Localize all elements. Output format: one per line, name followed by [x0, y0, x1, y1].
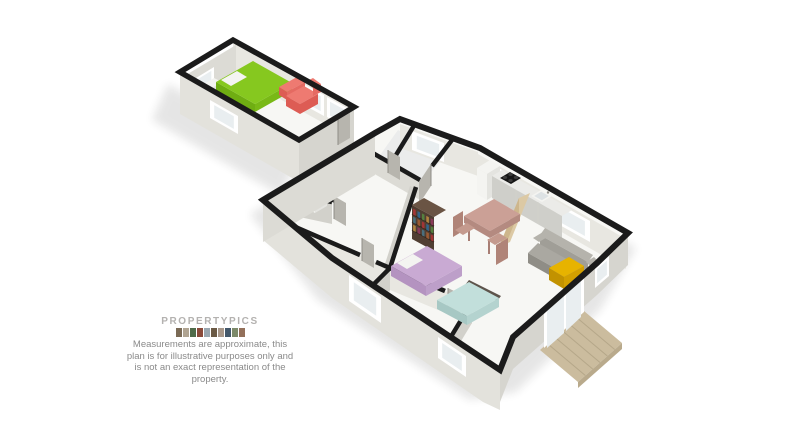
photo-thumb [183, 328, 189, 337]
photo-thumb [204, 328, 210, 337]
logo-text: PROPERTYPICS [130, 316, 290, 327]
logo-photo-strip [130, 328, 290, 337]
floorplan-page: PROPERTYPICS Measurements are approximat… [0, 0, 800, 427]
photo-thumb [239, 328, 245, 337]
disclaimer-text: Measurements are approximate, this plan … [126, 339, 294, 385]
photo-thumb [232, 328, 238, 337]
photo-thumb [190, 328, 196, 337]
photo-thumb [211, 328, 217, 337]
photo-thumb [176, 328, 182, 337]
photo-thumb [218, 328, 224, 337]
floor-plan-3d-render [0, 0, 800, 427]
photo-thumb [197, 328, 203, 337]
propertypics-logo: PROPERTYPICS [130, 316, 290, 337]
photo-thumb [225, 328, 231, 337]
